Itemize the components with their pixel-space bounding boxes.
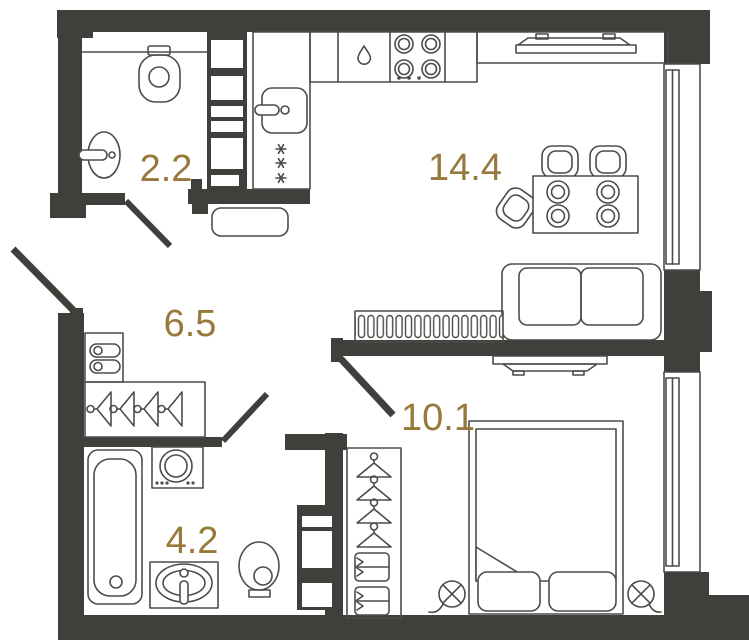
washer-knob [160,481,163,484]
wall-left-upper [58,10,82,193]
shaft-slat [302,516,332,527]
hanger-icon [357,453,391,477]
vent-shaft-bottom [297,505,337,610]
bathtub-outline [88,450,142,604]
bathroom-door-leaf [223,394,267,441]
folded-clothes-shelf [355,587,389,615]
toilet-base [249,590,270,597]
tv-mount [573,371,584,375]
shaft-slat [211,76,243,100]
chair-icon [542,146,578,178]
toilet-bowl [239,542,279,590]
room-bedroom: 10.1 [347,356,661,618]
wall-bottom-right-step [706,595,749,640]
lamp-icon [628,581,654,607]
room-area-label-wc: 2.2 [140,148,193,190]
hob-knob [407,76,411,80]
wall-left-lower [58,313,84,640]
wall-top [57,10,707,32]
room-bathroom: 4.2 [88,447,279,608]
freezer-star-icon [276,174,286,183]
room-area-label-bedroom: 10.1 [401,397,475,439]
shaft-slat [211,138,243,169]
bedside-lamp-right [628,581,661,612]
washbasin [79,132,120,178]
fridge-freezer [276,145,286,183]
hanger-icon [134,392,158,426]
room-area-label-kitchen-living: 14.4 [428,147,502,189]
basin-faucet-head [180,569,188,577]
shaft-slat [302,531,332,568]
slatted-cabinet [355,311,503,342]
washing-machine [152,447,203,488]
lamp-cord [649,604,661,612]
chair-icon [590,146,626,178]
toilet-drain [254,567,272,585]
basin-faucet [79,150,107,160]
sink-faucet [255,105,279,115]
wall-kitchen-nub-down [192,204,208,214]
window-living [664,64,700,270]
basin-faucet-stem [180,581,188,604]
wall-wc-bottom-left [78,193,125,205]
folded-clothes-shelf [355,553,389,581]
freezer-star-icon [276,159,286,168]
hanger-icon [110,392,134,426]
burner-icon [422,35,440,53]
hob [395,35,440,80]
room-area-label-hallway: 6.5 [164,303,217,345]
wall-window-pier [664,270,700,372]
window-bedroom [664,372,700,572]
pillow [549,572,616,611]
hob-knob [417,76,421,80]
dishwasher-drop-icon [358,46,370,64]
vanity-washbasin [150,562,218,608]
hanger-icon [87,392,111,426]
tv-bedroom [493,356,607,375]
bed-blanket [476,429,616,581]
sofa [502,264,661,340]
dining-table [533,176,638,233]
slipper-heel [94,363,102,371]
toilet-tank [148,46,170,55]
tv-mount [513,371,524,375]
bench [212,208,288,236]
room-kitchen-living: 14.4 [212,32,668,342]
room-hallway: 6.5 [85,303,216,437]
toilet-bowl [139,55,180,102]
bathtub-drain [110,576,122,588]
shaft-slat [211,121,243,132]
wall-window-pier-step [700,291,712,352]
wall-top-right-corner [664,10,710,64]
sink-drain [281,106,289,114]
hanger-icon [158,392,182,426]
tv-screen [493,356,607,364]
room-area-label-bathroom: 4.2 [166,520,219,562]
sofa-cushion [581,268,643,325]
lamp-cord [429,604,443,612]
washer-knob [165,481,168,484]
sofa-cushion [519,268,581,325]
shaft-slat [211,175,239,186]
floor-plan-page: 2.2 [0,0,749,640]
toilet-drain [149,67,169,87]
toilet-bathroom [239,542,279,597]
pillow [478,572,540,611]
kitchen-sink [255,88,307,133]
burner-icon [395,60,413,78]
washer-drum-inner [165,455,187,477]
washer-knob [191,481,194,484]
hanger-icon [357,499,391,523]
burner-icon [422,60,440,78]
shaft-slat [302,583,332,607]
kitchen-counter-row [310,32,477,82]
lamp-icon [439,581,465,607]
shaft-slat [211,106,243,117]
shaft-slat [211,40,243,68]
hob-knob [397,76,401,80]
shoe-cabinet [85,333,123,382]
basin-drain [109,152,115,158]
wall-kitchen-bottom [188,189,310,204]
wc-door-leaf [126,201,170,246]
double-bed [469,421,623,614]
freezer-star-icon [276,145,286,154]
burner-icon [395,35,413,53]
tv-living [477,32,668,63]
washer-knob [186,481,189,484]
entrance-door-leaf [13,249,76,313]
slipper-heel [94,347,102,355]
tv-stand [503,364,597,371]
tv-screen [516,45,636,53]
window-recess [664,64,700,270]
wall-bathroom-top [58,437,222,447]
window-recess [664,372,700,572]
bedside-lamp-left [429,581,465,612]
room-wc: 2.2 [79,46,207,190]
bathtub [88,450,142,604]
coat-rack [85,382,205,437]
washer-knob [155,481,158,484]
bedroom-door-leaf [341,359,393,415]
wall-kitchen-nub-up [191,179,202,191]
floor-plan: 2.2 [0,0,749,640]
vent-shaft-top [207,30,247,202]
wardrobe [347,448,401,618]
wall-bottom-right-pier [664,572,709,620]
hanger-icon [357,476,391,500]
toilet [139,46,180,102]
dining-set [493,146,638,233]
hanger-icon [357,523,391,547]
